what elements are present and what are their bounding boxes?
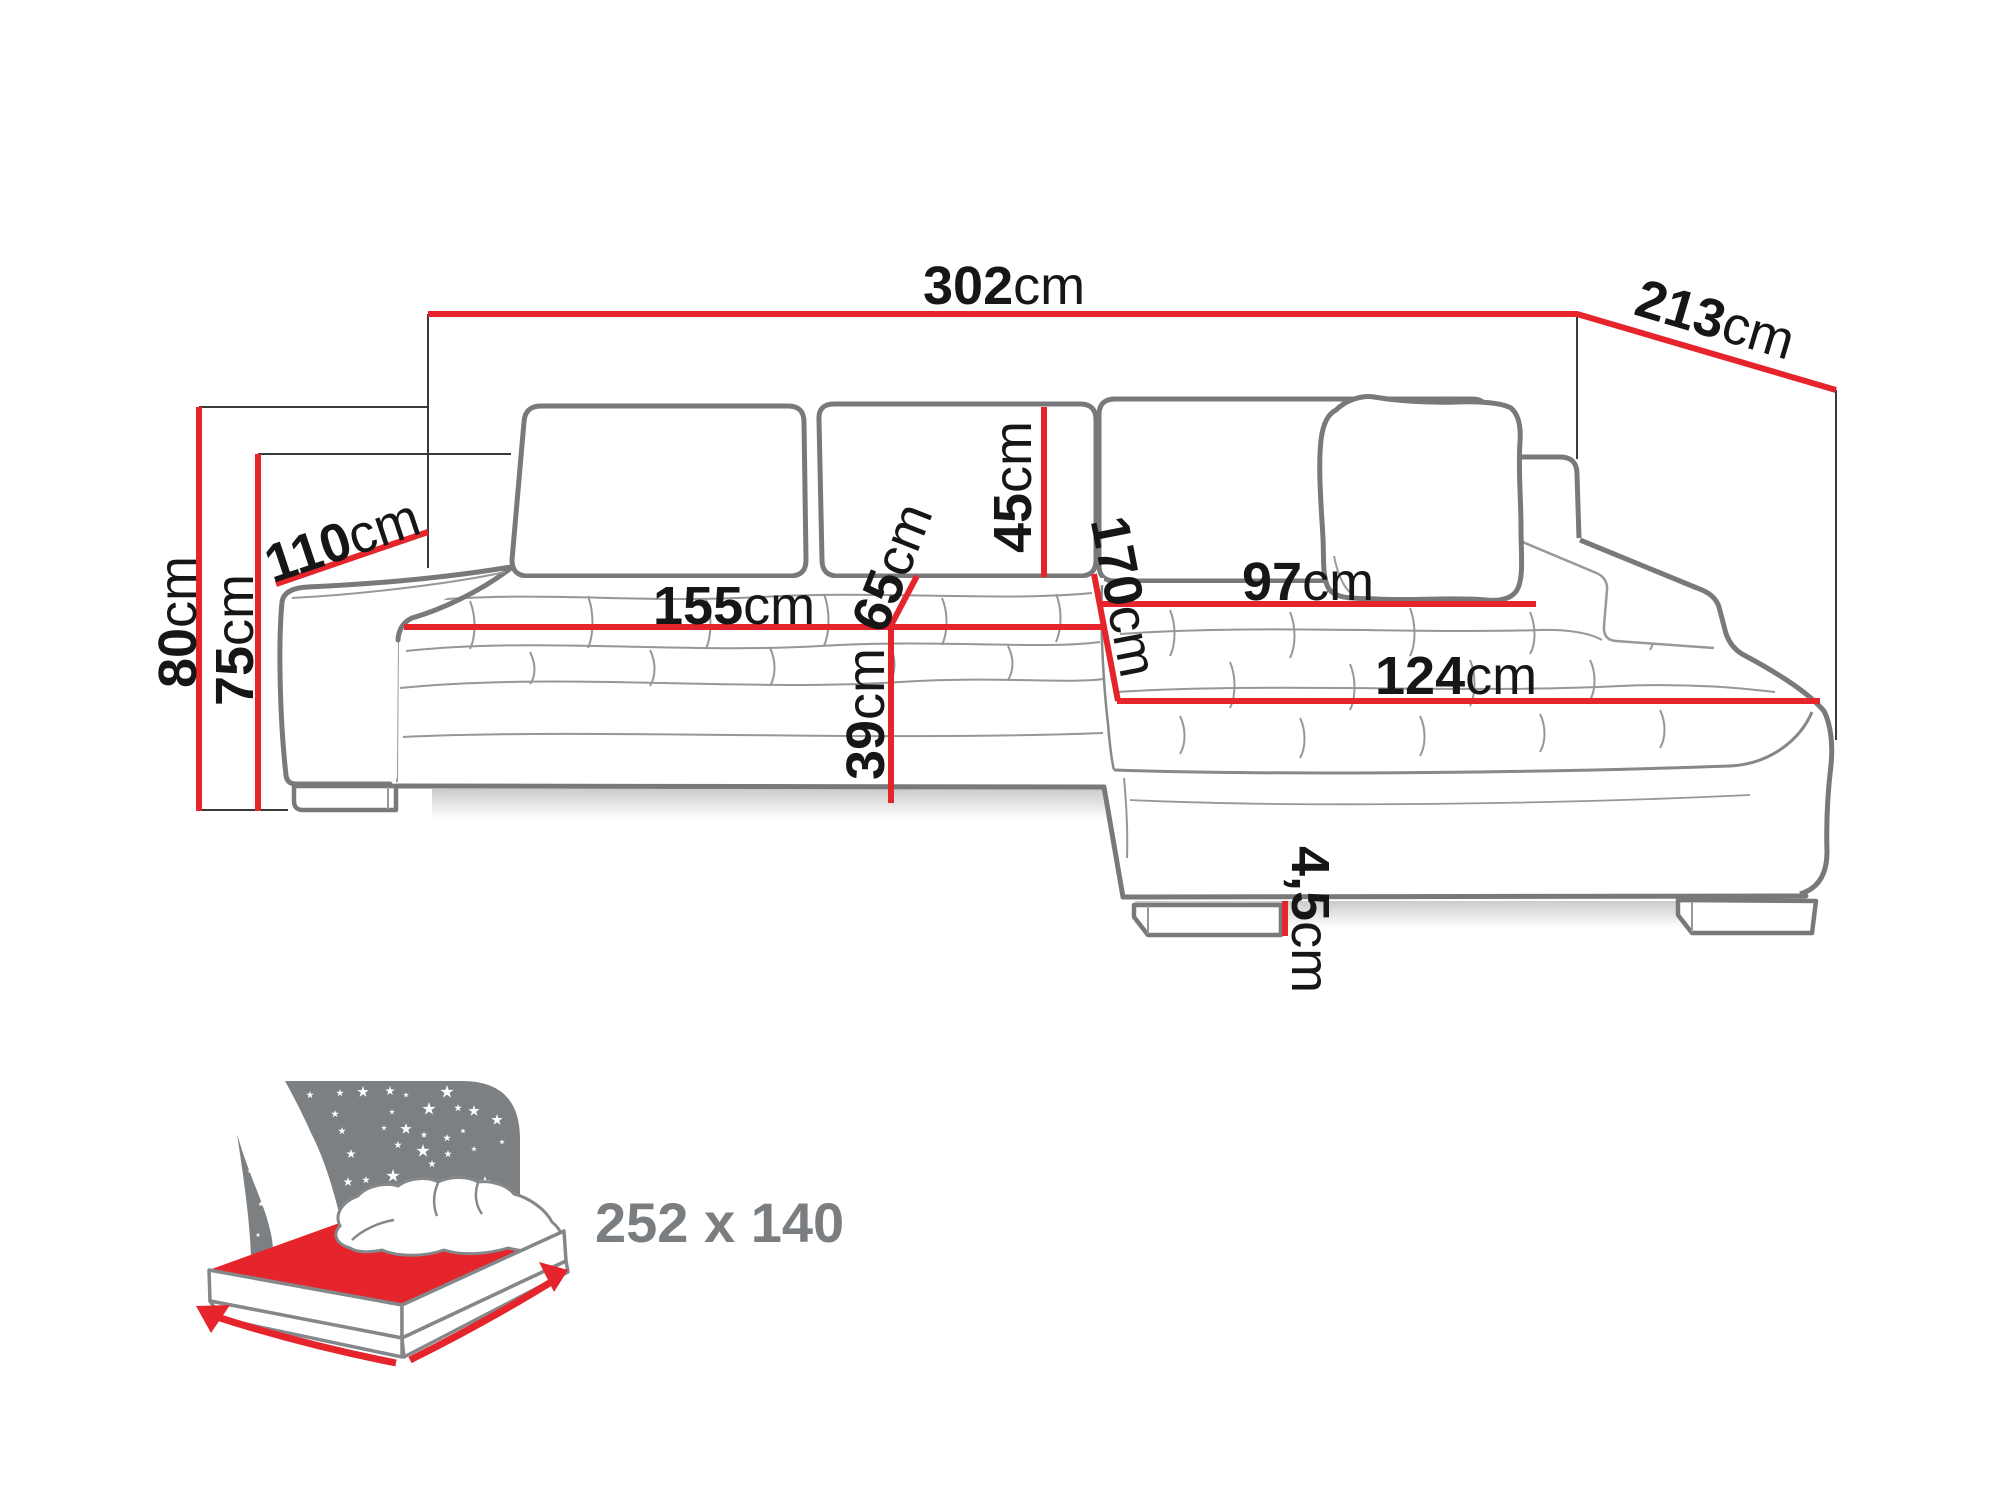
svg-text:252 x 140: 252 x 140 — [595, 1191, 844, 1254]
svg-text:75cm: 75cm — [205, 574, 265, 706]
svg-text:4,5cm: 4,5cm — [1280, 846, 1340, 993]
svg-text:80cm: 80cm — [148, 556, 208, 688]
svg-text:155cm: 155cm — [653, 576, 815, 636]
svg-text:39cm: 39cm — [836, 648, 896, 780]
svg-text:45cm: 45cm — [983, 421, 1043, 553]
svg-text:302cm: 302cm — [923, 256, 1085, 316]
svg-text:124cm: 124cm — [1375, 646, 1537, 706]
svg-text:97cm: 97cm — [1242, 552, 1374, 612]
